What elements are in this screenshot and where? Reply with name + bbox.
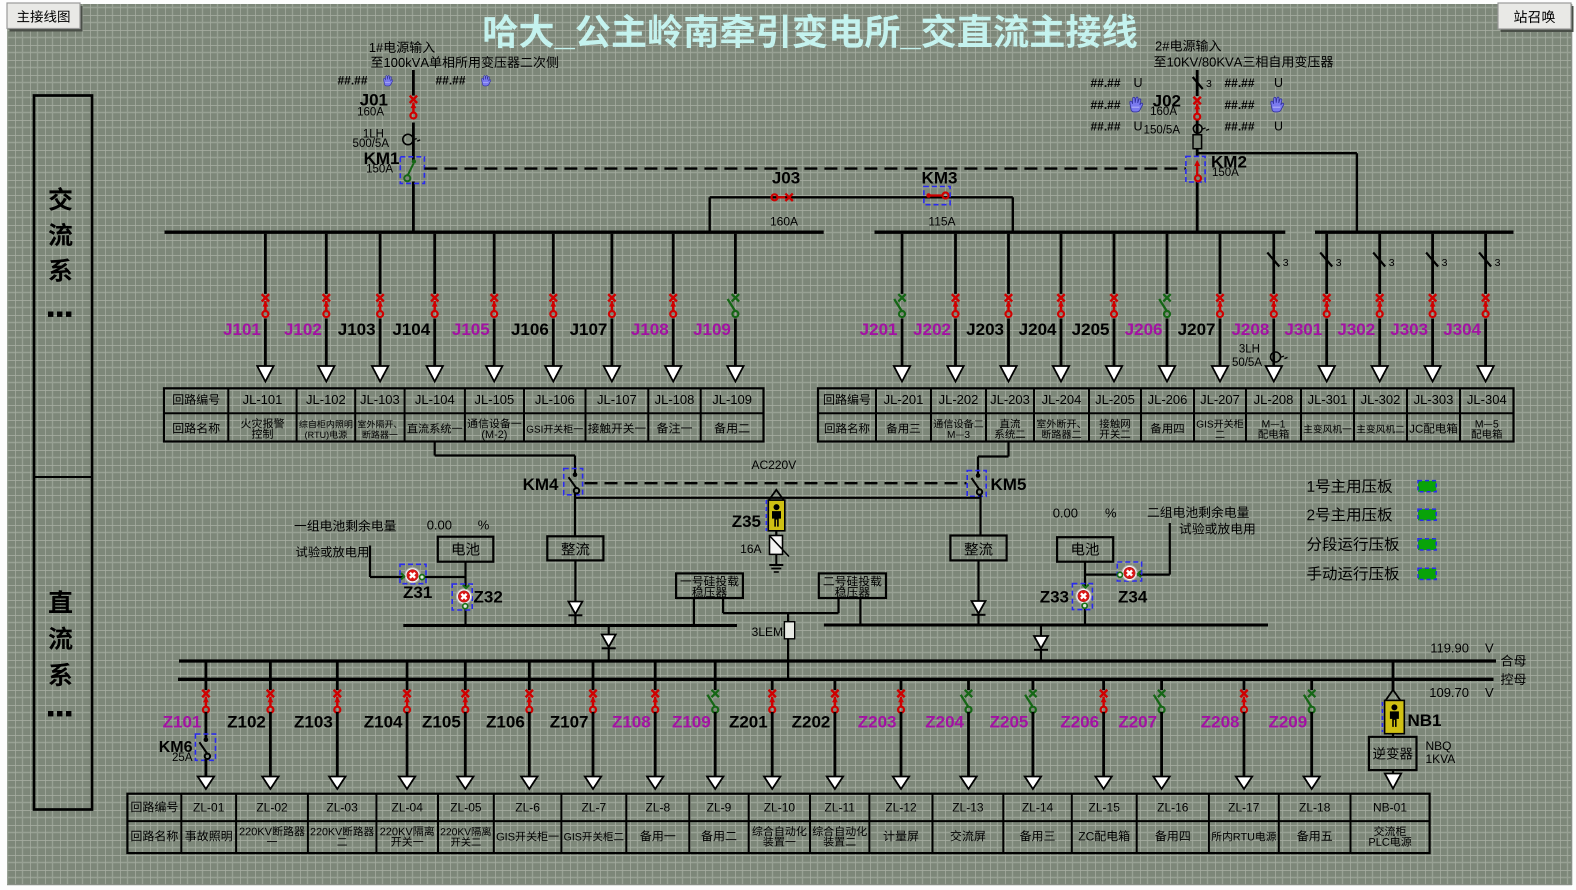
- svg-text:J203: J203: [966, 320, 1004, 339]
- svg-text:U: U: [1274, 76, 1283, 90]
- svg-text:JL-102: JL-102: [306, 392, 346, 407]
- svg-text:J204: J204: [1019, 320, 1057, 339]
- svg-text:Z204: Z204: [925, 713, 964, 732]
- svg-text:Z33: Z33: [1040, 588, 1069, 607]
- svg-text:J105: J105: [452, 320, 490, 339]
- svg-text:Z35: Z35: [732, 512, 761, 531]
- svg-text:JL-208: JL-208: [1254, 392, 1294, 407]
- svg-text:1KVA: 1KVA: [1426, 752, 1456, 766]
- svg-text:Z207: Z207: [1118, 713, 1157, 732]
- svg-text:Z203: Z203: [858, 713, 897, 732]
- svg-text:ZL-13: ZL-13: [952, 800, 984, 814]
- svg-text:3: 3: [1389, 257, 1395, 269]
- svg-text:Z208: Z208: [1201, 713, 1240, 732]
- svg-text:3: 3: [1283, 257, 1289, 269]
- svg-text:150A: 150A: [1212, 167, 1239, 179]
- svg-text:3LH: 3LH: [1239, 344, 1260, 356]
- svg-text:119.90: 119.90: [1430, 641, 1469, 656]
- svg-text:JL-205: JL-205: [1095, 392, 1135, 407]
- svg-text:JL-301: JL-301: [1308, 392, 1348, 407]
- svg-text:J106: J106: [511, 320, 549, 339]
- svg-text:JL-108: JL-108: [655, 392, 695, 407]
- svg-text:KM4: KM4: [523, 475, 559, 494]
- svg-text:J303: J303: [1390, 320, 1428, 339]
- svg-text:J207: J207: [1178, 320, 1216, 339]
- svg-text:160A: 160A: [357, 107, 384, 119]
- svg-text:3: 3: [1206, 78, 1212, 90]
- svg-text:JL-107: JL-107: [597, 392, 637, 407]
- svg-text:NBQ: NBQ: [1426, 739, 1452, 753]
- svg-text:JL-109: JL-109: [712, 392, 752, 407]
- svg-text:ZL-10: ZL-10: [764, 800, 796, 814]
- svg-text:JL-303: JL-303: [1414, 392, 1454, 407]
- svg-text:##.##: ##.##: [436, 74, 466, 88]
- svg-text:ZL-11: ZL-11: [824, 800, 855, 814]
- svg-text:Z107: Z107: [550, 713, 589, 732]
- svg-text:JL-104: JL-104: [415, 392, 455, 407]
- svg-text:Z106: Z106: [486, 713, 525, 732]
- svg-text:ZL-8: ZL-8: [645, 800, 670, 814]
- svg-text:U: U: [1134, 76, 1143, 90]
- svg-text:150/5A: 150/5A: [1144, 125, 1181, 137]
- svg-text:Z34: Z34: [1118, 588, 1148, 607]
- svg-text:JL-204: JL-204: [1042, 392, 1082, 407]
- svg-text:Z206: Z206: [1060, 713, 1099, 732]
- svg-text:J208: J208: [1231, 320, 1269, 339]
- svg-text:J109: J109: [693, 320, 731, 339]
- svg-text:Z32: Z32: [474, 588, 503, 607]
- svg-text:Z31: Z31: [403, 583, 432, 602]
- svg-text:JL-101: JL-101: [243, 392, 283, 407]
- svg-text:KM3: KM3: [922, 169, 958, 188]
- svg-text:3LEM: 3LEM: [752, 625, 783, 639]
- svg-text:J205: J205: [1072, 320, 1110, 339]
- svg-text:##.##: ##.##: [1225, 98, 1255, 112]
- svg-text:J206: J206: [1125, 320, 1163, 339]
- svg-text:Z104: Z104: [364, 713, 403, 732]
- svg-text:JL-202: JL-202: [939, 392, 979, 407]
- svg-text:ZL-17: ZL-17: [1228, 800, 1260, 814]
- svg-text:ZL-15: ZL-15: [1089, 800, 1121, 814]
- svg-text:ZL-14: ZL-14: [1022, 800, 1054, 814]
- svg-text:109.70: 109.70: [1429, 685, 1469, 700]
- svg-text:JL-207: JL-207: [1200, 392, 1240, 407]
- svg-text:JL-201: JL-201: [884, 392, 924, 407]
- svg-text:J107: J107: [570, 320, 608, 339]
- svg-text:Z101: Z101: [163, 713, 202, 732]
- svg-text:Z202: Z202: [792, 713, 831, 732]
- svg-text:Z103: Z103: [294, 713, 333, 732]
- svg-text:J102: J102: [284, 320, 322, 339]
- svg-text:JL-302: JL-302: [1361, 392, 1401, 407]
- svg-text:##.##: ##.##: [1090, 98, 1120, 112]
- svg-text:Z108: Z108: [612, 713, 651, 732]
- svg-text:160A: 160A: [1150, 106, 1177, 118]
- svg-text:160A: 160A: [770, 215, 798, 229]
- svg-text:J202: J202: [913, 320, 951, 339]
- svg-text:J108: J108: [631, 320, 669, 339]
- svg-text:3: 3: [1336, 257, 1342, 269]
- svg-text:50/5A: 50/5A: [1232, 357, 1262, 369]
- svg-text:ZL-05: ZL-05: [450, 800, 482, 814]
- svg-text:J103: J103: [338, 320, 376, 339]
- svg-text:J302: J302: [1337, 320, 1375, 339]
- svg-text:V: V: [1485, 685, 1494, 700]
- svg-text:Z205: Z205: [990, 713, 1029, 732]
- svg-text:150A: 150A: [366, 164, 393, 176]
- svg-text:J304: J304: [1443, 320, 1481, 339]
- svg-text:Z102: Z102: [227, 713, 266, 732]
- svg-text:J101: J101: [223, 320, 261, 339]
- svg-text:JL-206: JL-206: [1148, 392, 1188, 407]
- svg-text:U: U: [1134, 120, 1143, 134]
- svg-text:(M-2): (M-2): [481, 429, 507, 441]
- svg-text:%: %: [478, 518, 490, 533]
- svg-text:U: U: [1274, 120, 1283, 134]
- svg-text:ZL-03: ZL-03: [326, 800, 358, 814]
- svg-text:JL-105: JL-105: [475, 392, 515, 407]
- svg-text:115A: 115A: [928, 215, 955, 229]
- svg-text:JL-203: JL-203: [990, 392, 1030, 407]
- svg-text:##.##: ##.##: [338, 74, 368, 88]
- svg-text:ZL-16: ZL-16: [1157, 800, 1189, 814]
- svg-text:ZL-02: ZL-02: [256, 800, 288, 814]
- svg-text:ZL-12: ZL-12: [885, 800, 917, 814]
- svg-text:JL-106: JL-106: [535, 392, 575, 407]
- svg-text:J301: J301: [1284, 320, 1322, 339]
- svg-text:J201: J201: [860, 320, 898, 339]
- svg-text:V: V: [1485, 641, 1494, 656]
- svg-text:##.##: ##.##: [1225, 76, 1255, 90]
- svg-text:##.##: ##.##: [1225, 120, 1255, 134]
- svg-text:ZL-04: ZL-04: [392, 800, 424, 814]
- svg-text:ZL-7: ZL-7: [581, 800, 606, 814]
- svg-text:16A: 16A: [740, 542, 761, 556]
- svg-text:AC220V: AC220V: [752, 458, 797, 472]
- svg-text:ZL-6: ZL-6: [515, 800, 540, 814]
- svg-text:ZL-01: ZL-01: [193, 800, 225, 814]
- svg-text:JL-103: JL-103: [360, 392, 400, 407]
- svg-text:##.##: ##.##: [1090, 76, 1120, 90]
- svg-text:0.00: 0.00: [427, 518, 452, 533]
- svg-text:JL-304: JL-304: [1467, 392, 1507, 407]
- svg-text:NB1: NB1: [1408, 711, 1442, 730]
- svg-text:3: 3: [1495, 257, 1501, 269]
- svg-text:ZL-9: ZL-9: [707, 800, 732, 814]
- svg-text:25A: 25A: [172, 752, 193, 764]
- svg-text:Z109: Z109: [672, 713, 711, 732]
- svg-text:0.00: 0.00: [1053, 506, 1078, 521]
- svg-text:ZL-18: ZL-18: [1299, 800, 1331, 814]
- svg-text:NB-01: NB-01: [1373, 800, 1407, 814]
- svg-text:3: 3: [1442, 257, 1448, 269]
- svg-text:KM5: KM5: [991, 475, 1027, 494]
- svg-text:Z209: Z209: [1268, 713, 1307, 732]
- svg-text:Z201: Z201: [729, 713, 768, 732]
- svg-text:J03: J03: [772, 169, 800, 188]
- svg-text:Z105: Z105: [422, 713, 461, 732]
- svg-text:%: %: [1105, 506, 1117, 521]
- svg-text:##.##: ##.##: [1090, 120, 1120, 134]
- svg-text:J104: J104: [392, 320, 430, 339]
